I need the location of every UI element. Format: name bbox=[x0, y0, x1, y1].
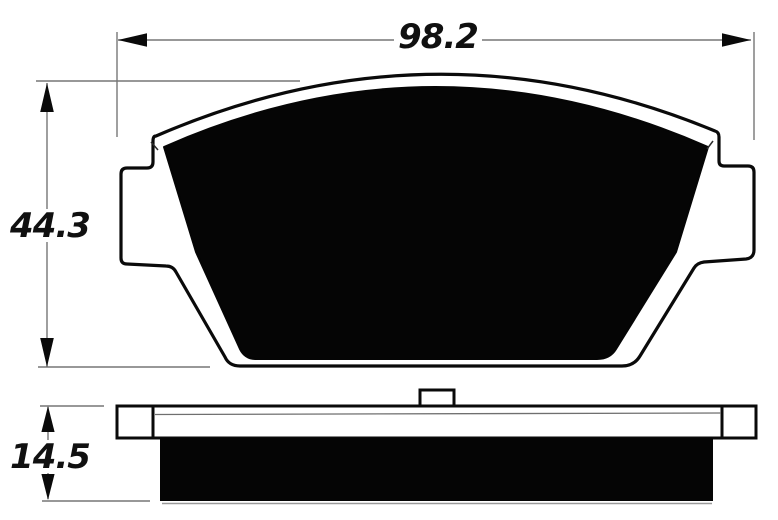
thickness-arrow-up-icon bbox=[41, 406, 54, 432]
thickness-dimension-label: 14.5 bbox=[10, 437, 90, 477]
pad-friction-material bbox=[164, 87, 708, 359]
diagram-svg: 98.2 44.3 14.5 bbox=[0, 0, 778, 520]
width-dimension-label: 98.2 bbox=[398, 17, 478, 57]
side-view-backing-plate bbox=[117, 406, 756, 438]
width-arrow-right-icon bbox=[722, 33, 751, 47]
height-dimension-label: 44.3 bbox=[9, 206, 90, 246]
height-arrow-up-icon bbox=[40, 83, 54, 112]
brake-pad-drawing: 98.2 44.3 14.5 bbox=[0, 0, 778, 520]
height-arrow-down-icon bbox=[40, 338, 54, 367]
width-arrow-left-icon bbox=[118, 33, 147, 47]
thickness-arrow-down-icon bbox=[41, 474, 54, 500]
pad-side-view bbox=[117, 390, 756, 504]
side-view-locating-tab bbox=[420, 390, 454, 407]
side-view-friction-material bbox=[160, 438, 713, 501]
